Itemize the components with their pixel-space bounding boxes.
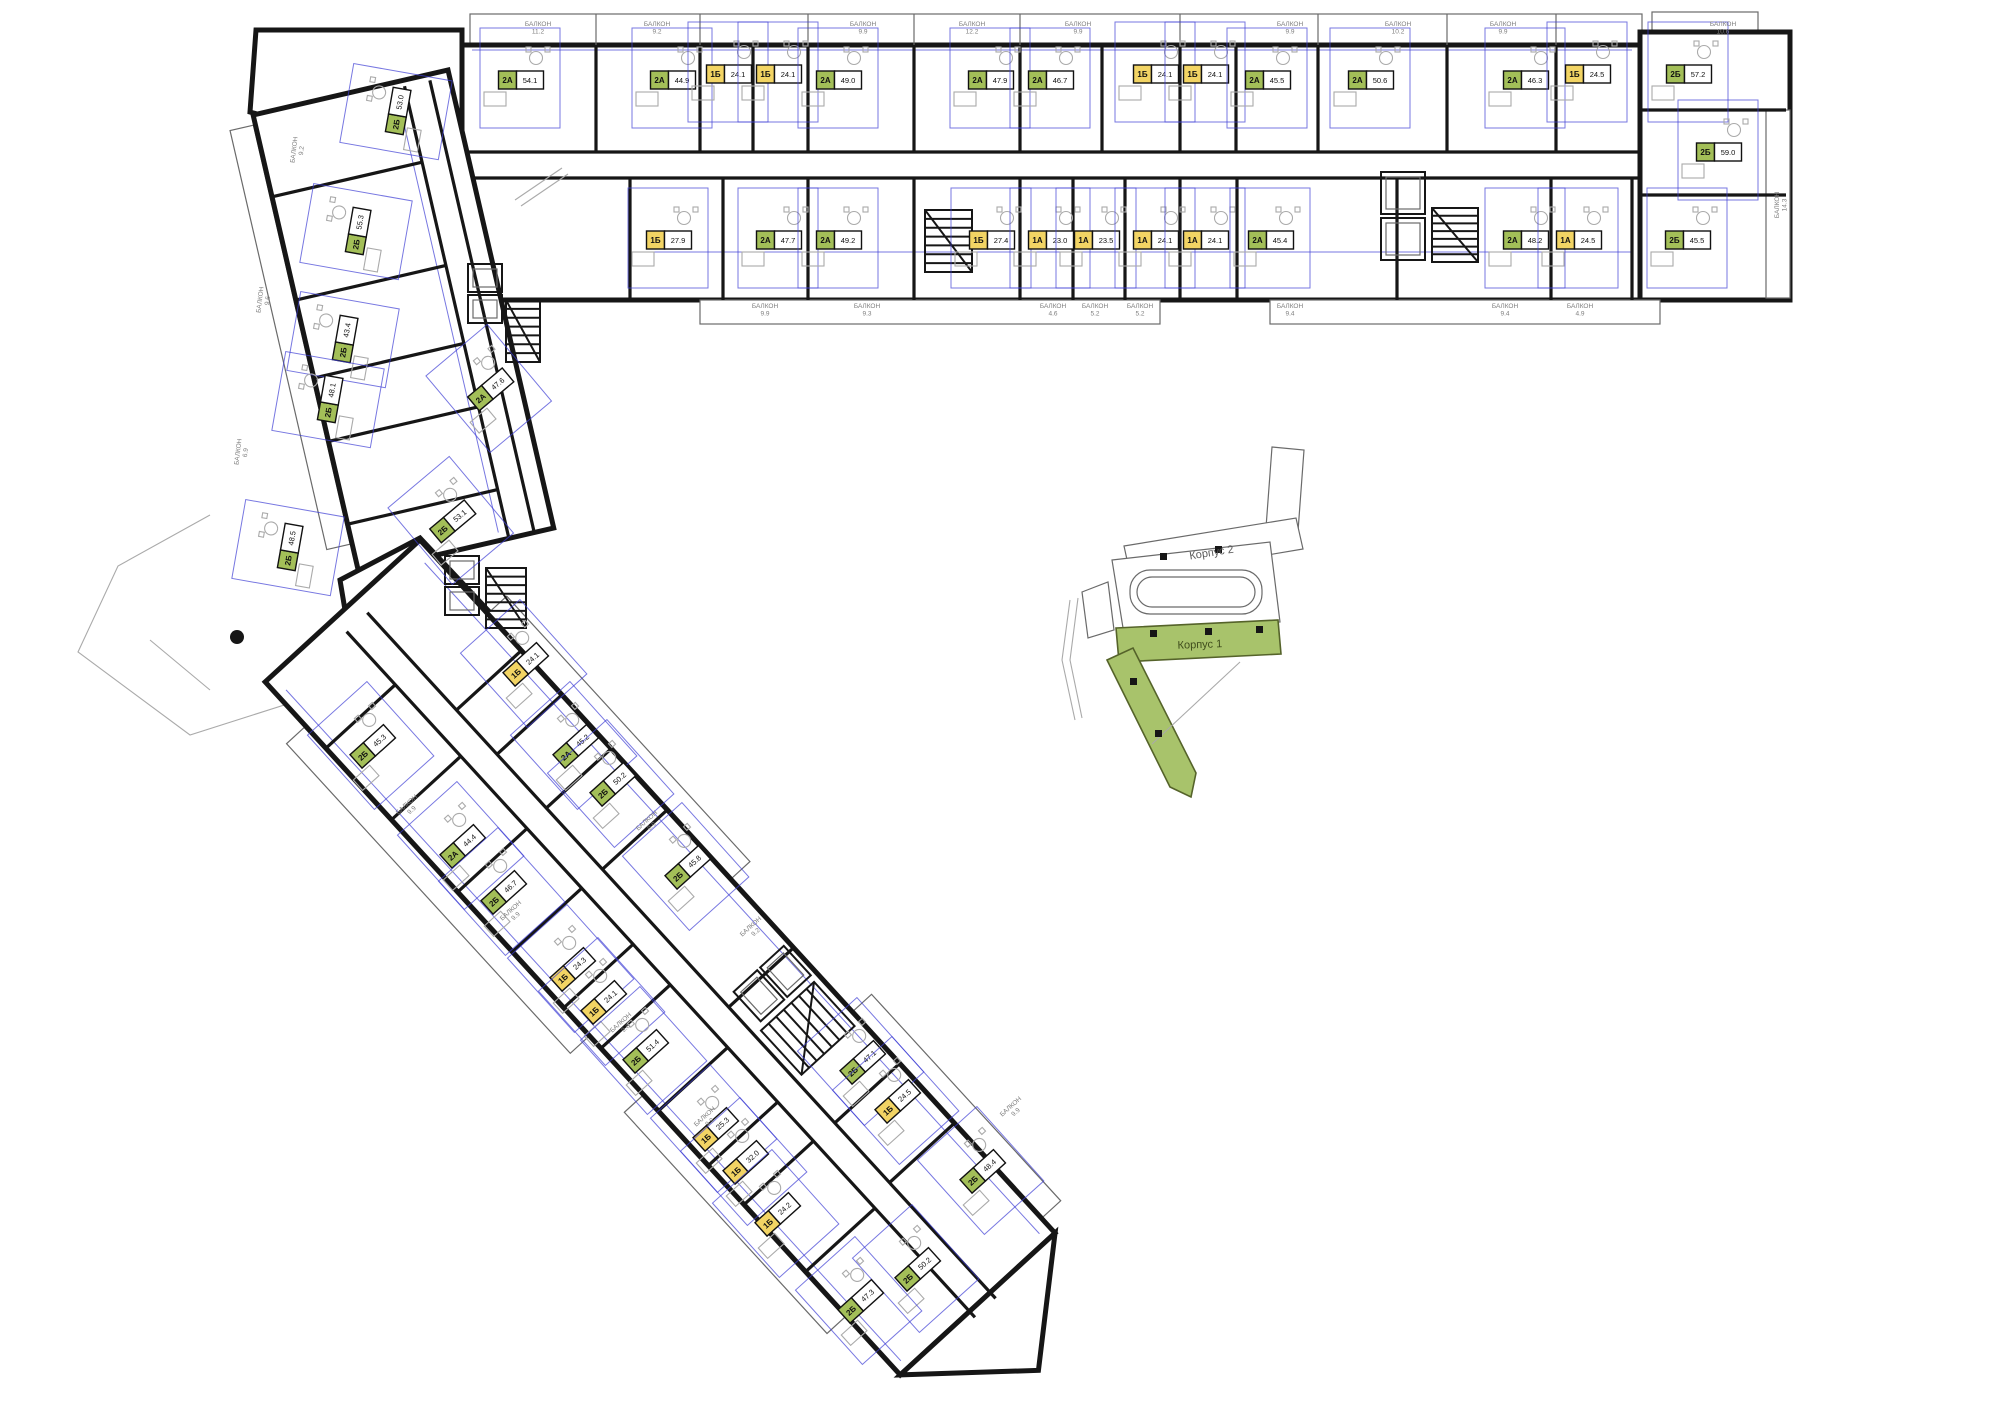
- unit-type-label: 1А: [1560, 236, 1570, 245]
- unit-area-label: 46.7: [1053, 76, 1068, 85]
- unit-type-label: 1Б: [1569, 70, 1579, 79]
- unit-type-label: 2А: [1032, 76, 1042, 85]
- unit-area-label: 46.3: [1528, 76, 1543, 85]
- unit-type-label: 2А: [654, 76, 664, 85]
- unit-area-label: 45.4: [1273, 236, 1288, 245]
- unit-type-label: 1Б: [1187, 70, 1197, 79]
- korpus1-label: Корпус 1: [1177, 638, 1222, 652]
- unit-area-label: 27.4: [994, 236, 1009, 245]
- unit-area-label: 24.5: [1581, 236, 1596, 245]
- unit-type-label: 1А: [1137, 236, 1147, 245]
- unit-area-label: 49.2: [841, 236, 856, 245]
- unit-area-label: 24.1: [1208, 70, 1223, 79]
- unit-type-label: 2Б: [283, 554, 294, 566]
- keyplan-core-mark: [1256, 626, 1263, 633]
- unit-area-label: 47.9: [993, 76, 1008, 85]
- unit-type-label: 2А: [1507, 236, 1517, 245]
- unit-area-label: 49.0: [841, 76, 856, 85]
- unit-type-label: 1Б: [973, 236, 983, 245]
- unit-area-label: 44.9: [675, 76, 690, 85]
- keyplan-core-mark: [1160, 553, 1167, 560]
- column-marker: [230, 630, 244, 644]
- unit-area-label: 23.0: [1053, 236, 1068, 245]
- unit-type-label: 2А: [972, 76, 982, 85]
- unit-area-label: 24.1: [781, 70, 796, 79]
- unit-type-label: 1Б: [1137, 70, 1147, 79]
- unit-type-label: 1Б: [650, 236, 660, 245]
- unit-type-label: 1А: [1187, 236, 1197, 245]
- unit-type-label: 1Б: [710, 70, 720, 79]
- unit-type-label: 2А: [1507, 76, 1517, 85]
- unit-area-label: 24.5: [1590, 70, 1605, 79]
- unit-type-label: 1А: [1078, 236, 1088, 245]
- unit-area-label: 50.6: [1373, 76, 1388, 85]
- unit-type-label: 2А: [820, 236, 830, 245]
- unit-type-label: 2Б: [1700, 148, 1710, 157]
- unit-type-label: 2А: [1249, 76, 1259, 85]
- unit-area-label: 23.5: [1099, 236, 1114, 245]
- unit-type-label: 2Б: [1669, 236, 1679, 245]
- unit-area-label: 48.2: [1528, 236, 1543, 245]
- keyplan-core-mark: [1150, 630, 1157, 637]
- unit-area-label: 59.0: [1721, 148, 1736, 157]
- unit-type-label: 2Б: [391, 118, 402, 130]
- keyplan-core-mark: [1205, 628, 1212, 635]
- unit-area-label: 57.2: [1691, 70, 1706, 79]
- unit-area-label: 45.5: [1270, 76, 1285, 85]
- floorplan-page: Корпус 2 Корпус 1 2А54.12А44.91Б24.11Б24…: [0, 0, 2000, 1415]
- unit-type-label: 2Б: [338, 346, 349, 358]
- floorplan-svg: Корпус 2 Корпус 1 2А54.12А44.91Б24.11Б24…: [0, 0, 2000, 1415]
- balcony-strip-bottom: [1270, 300, 1660, 324]
- keyplan-core-mark: [1155, 730, 1162, 737]
- unit-type-label: 2Б: [1670, 70, 1680, 79]
- korpus2-annex: [1082, 582, 1114, 638]
- unit-type-label: 2Б: [351, 238, 362, 250]
- unit-type-label: 2Б: [323, 406, 334, 418]
- unit-type-label: 2А: [1352, 76, 1362, 85]
- unit-type-label: 1А: [1032, 236, 1042, 245]
- unit-type-label: 2А: [820, 76, 830, 85]
- unit-area-label: 27.9: [671, 236, 686, 245]
- unit-type-label: 1Б: [760, 70, 770, 79]
- unit-type-label: 2А: [760, 236, 770, 245]
- keyplan-core-mark: [1130, 678, 1137, 685]
- unit-type-label: 2А: [502, 76, 512, 85]
- unit-area-label: 47.7: [781, 236, 796, 245]
- unit-type-label: 2А: [1252, 236, 1262, 245]
- unit-area-label: 45.5: [1690, 236, 1705, 245]
- balcony-strip-top: [470, 14, 1642, 45]
- unit-area-label: 24.1: [1208, 236, 1223, 245]
- unit-area-label: 54.1: [523, 76, 538, 85]
